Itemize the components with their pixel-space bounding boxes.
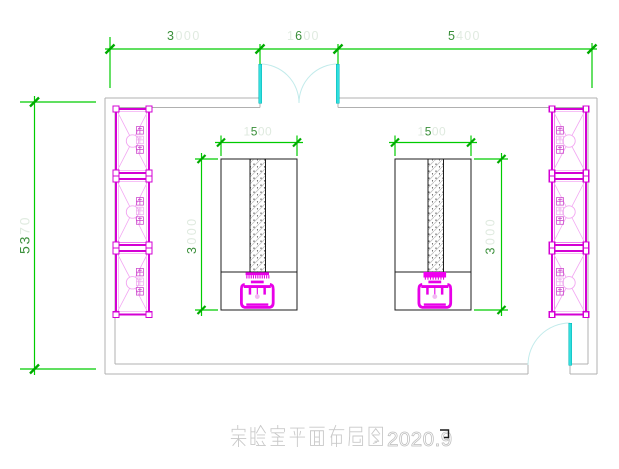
- svg-text:3000: 3000: [167, 29, 201, 43]
- svg-text:5370: 5370: [17, 216, 33, 254]
- svg-text:5400: 5400: [448, 29, 481, 43]
- svg-text:3000: 3000: [484, 217, 498, 254]
- svg-text:1500: 1500: [244, 125, 273, 139]
- svg-text:2020.9: 2020.9: [387, 428, 453, 451]
- svg-text:1600: 1600: [287, 29, 320, 43]
- svg-text:3000: 3000: [185, 217, 199, 254]
- svg-text:1500: 1500: [418, 125, 447, 139]
